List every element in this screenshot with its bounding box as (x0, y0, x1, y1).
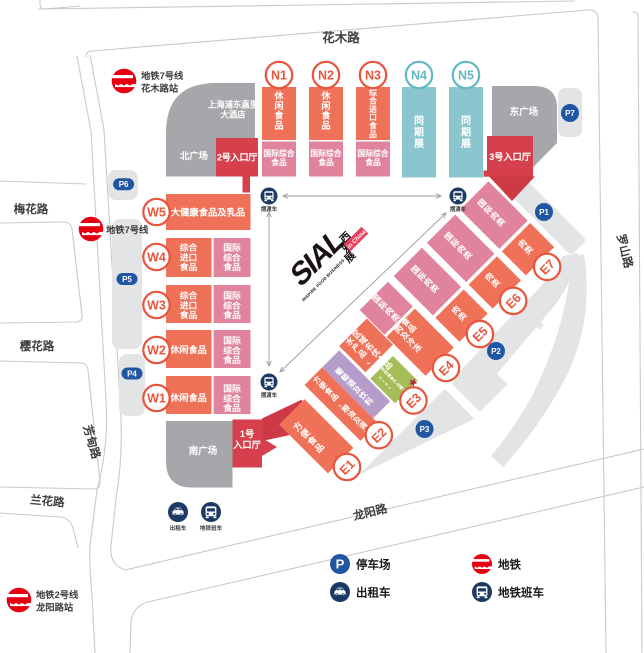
svg-text:出租车: 出租车 (356, 586, 391, 600)
svg-text:樱花路: 樱花路 (20, 339, 55, 353)
svg-text:P3: P3 (420, 425, 430, 434)
svg-text:综合进口食品: 综合进口食品 (179, 242, 198, 273)
svg-text:P7: P7 (565, 109, 575, 118)
svg-text:停车场: 停车场 (356, 558, 391, 572)
svg-text:北广场: 北广场 (180, 150, 208, 161)
svg-text:地铁班车: 地铁班车 (200, 524, 223, 532)
svg-text:同期展: 同期展 (461, 115, 471, 150)
svg-text:国际综合食品: 国际综合食品 (222, 243, 241, 273)
svg-text:国际综合食品: 国际综合食品 (222, 291, 241, 321)
svg-text:N5: N5 (458, 69, 474, 83)
svg-text:休闲食品: 休闲食品 (169, 344, 207, 355)
svg-text:2号入口厅: 2号入口厅 (217, 153, 257, 163)
svg-text:出租车: 出租车 (170, 524, 187, 532)
svg-text:综合进口食品: 综合进口食品 (368, 87, 377, 139)
svg-text:综合进口食品: 综合进口食品 (179, 290, 198, 321)
svg-text:国际综合食品: 国际综合食品 (222, 336, 241, 366)
svg-text:地铁班车: 地铁班车 (498, 586, 544, 600)
svg-text:N2: N2 (318, 69, 334, 83)
svg-text:花木路: 花木路 (322, 30, 360, 45)
svg-text:P: P (336, 557, 345, 572)
svg-text:P2: P2 (491, 347, 501, 356)
svg-text:N4: N4 (411, 69, 427, 83)
svg-text:东广场: 东广场 (510, 106, 539, 118)
svg-text:P5: P5 (122, 275, 132, 284)
svg-text:休闲食品: 休闲食品 (273, 90, 284, 130)
svg-text:地铁7号线: 地铁7号线 (106, 224, 149, 235)
svg-text:摆渡车: 摆渡车 (261, 205, 278, 213)
svg-text:地铁: 地铁 (498, 558, 521, 572)
svg-text:P6: P6 (119, 180, 129, 189)
svg-text:N3: N3 (365, 69, 381, 83)
svg-text:3号入口厅: 3号入口厅 (489, 152, 531, 162)
svg-text:P4: P4 (127, 369, 137, 378)
svg-text:梅花路: 梅花路 (14, 202, 49, 216)
svg-text:W2: W2 (147, 344, 166, 358)
svg-text:W3: W3 (147, 299, 166, 313)
svg-text:N1: N1 (271, 69, 287, 83)
svg-text:同期展: 同期展 (414, 115, 424, 150)
svg-text:南广场: 南广场 (189, 445, 218, 457)
svg-text:摆渡车: 摆渡车 (450, 205, 467, 213)
svg-text:摆渡车: 摆渡车 (261, 391, 278, 399)
svg-text:国际综合食品: 国际综合食品 (222, 384, 241, 414)
svg-text:大健康食品及乳品: 大健康食品及乳品 (171, 207, 245, 218)
svg-text:P1: P1 (539, 208, 549, 217)
svg-text:休闲食品: 休闲食品 (169, 392, 207, 403)
svg-text:W4: W4 (147, 251, 166, 265)
svg-text:W5: W5 (147, 206, 166, 220)
svg-text:休闲食品: 休闲食品 (320, 90, 331, 130)
svg-text:W1: W1 (147, 392, 166, 406)
